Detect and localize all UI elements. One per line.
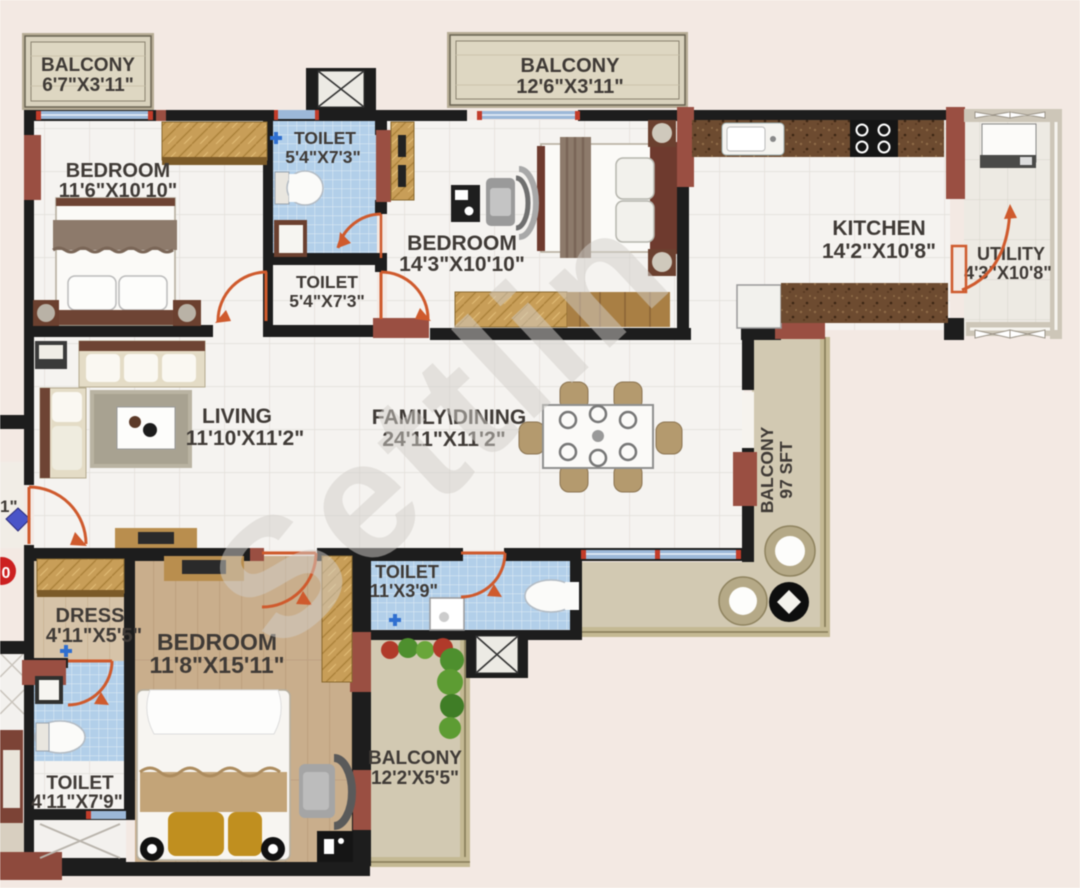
svg-text:UTILITY: UTILITY bbox=[977, 244, 1045, 264]
svg-text:14'2"X10'8": 14'2"X10'8" bbox=[822, 240, 936, 263]
svg-text:11'6"X10'10": 11'6"X10'10" bbox=[59, 180, 178, 202]
svg-text:6'7"X3'11": 6'7"X3'11" bbox=[42, 75, 134, 96]
svg-text:11'8"X15'11": 11'8"X15'11" bbox=[149, 652, 284, 678]
svg-text:DRESS: DRESS bbox=[56, 605, 125, 627]
svg-text:97 SFT: 97 SFT bbox=[776, 441, 796, 499]
svg-text:5'4"X7'3": 5'4"X7'3" bbox=[285, 147, 361, 167]
svg-text:BALCONY: BALCONY bbox=[41, 55, 135, 76]
svg-text:5'4"X7'3": 5'4"X7'3" bbox=[289, 291, 365, 311]
svg-text:12'6"X3'11": 12'6"X3'11" bbox=[516, 76, 623, 98]
svg-text:12'2'X5'5": 12'2'X5'5" bbox=[371, 768, 459, 789]
svg-text:BEDROOM: BEDROOM bbox=[66, 160, 170, 182]
svg-text:BALCONY: BALCONY bbox=[757, 426, 777, 513]
svg-text:LIVING: LIVING bbox=[202, 405, 272, 428]
svg-text:4'11"X5'5": 4'11"X5'5" bbox=[46, 625, 142, 647]
svg-text:TOILET: TOILET bbox=[46, 773, 114, 794]
svg-text:4'3"X10'8": 4'3"X10'8" bbox=[964, 263, 1052, 283]
svg-text:4'11"X7'9": 4'11"X7'9" bbox=[31, 792, 123, 813]
svg-text:TOILET: TOILET bbox=[296, 272, 358, 292]
svg-text:0: 0 bbox=[2, 565, 11, 582]
svg-text:TOILET: TOILET bbox=[294, 128, 356, 148]
svg-text:KITCHEN: KITCHEN bbox=[832, 217, 925, 240]
svg-text:BALCONY: BALCONY bbox=[521, 55, 621, 77]
svg-text:BALCONY: BALCONY bbox=[368, 748, 462, 769]
